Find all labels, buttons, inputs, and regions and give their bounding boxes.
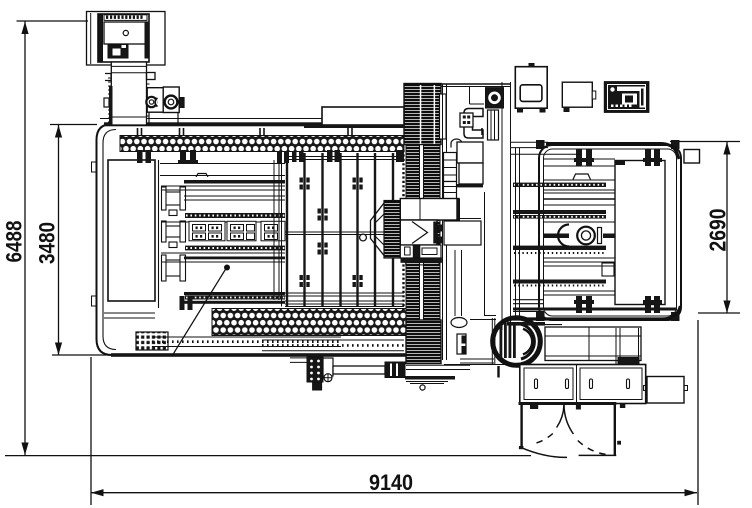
svg-text:3480: 3480 <box>35 222 60 264</box>
svg-text:6488: 6488 <box>2 221 27 263</box>
svg-text:2690: 2690 <box>705 209 731 252</box>
svg-text:9140: 9140 <box>369 470 413 495</box>
